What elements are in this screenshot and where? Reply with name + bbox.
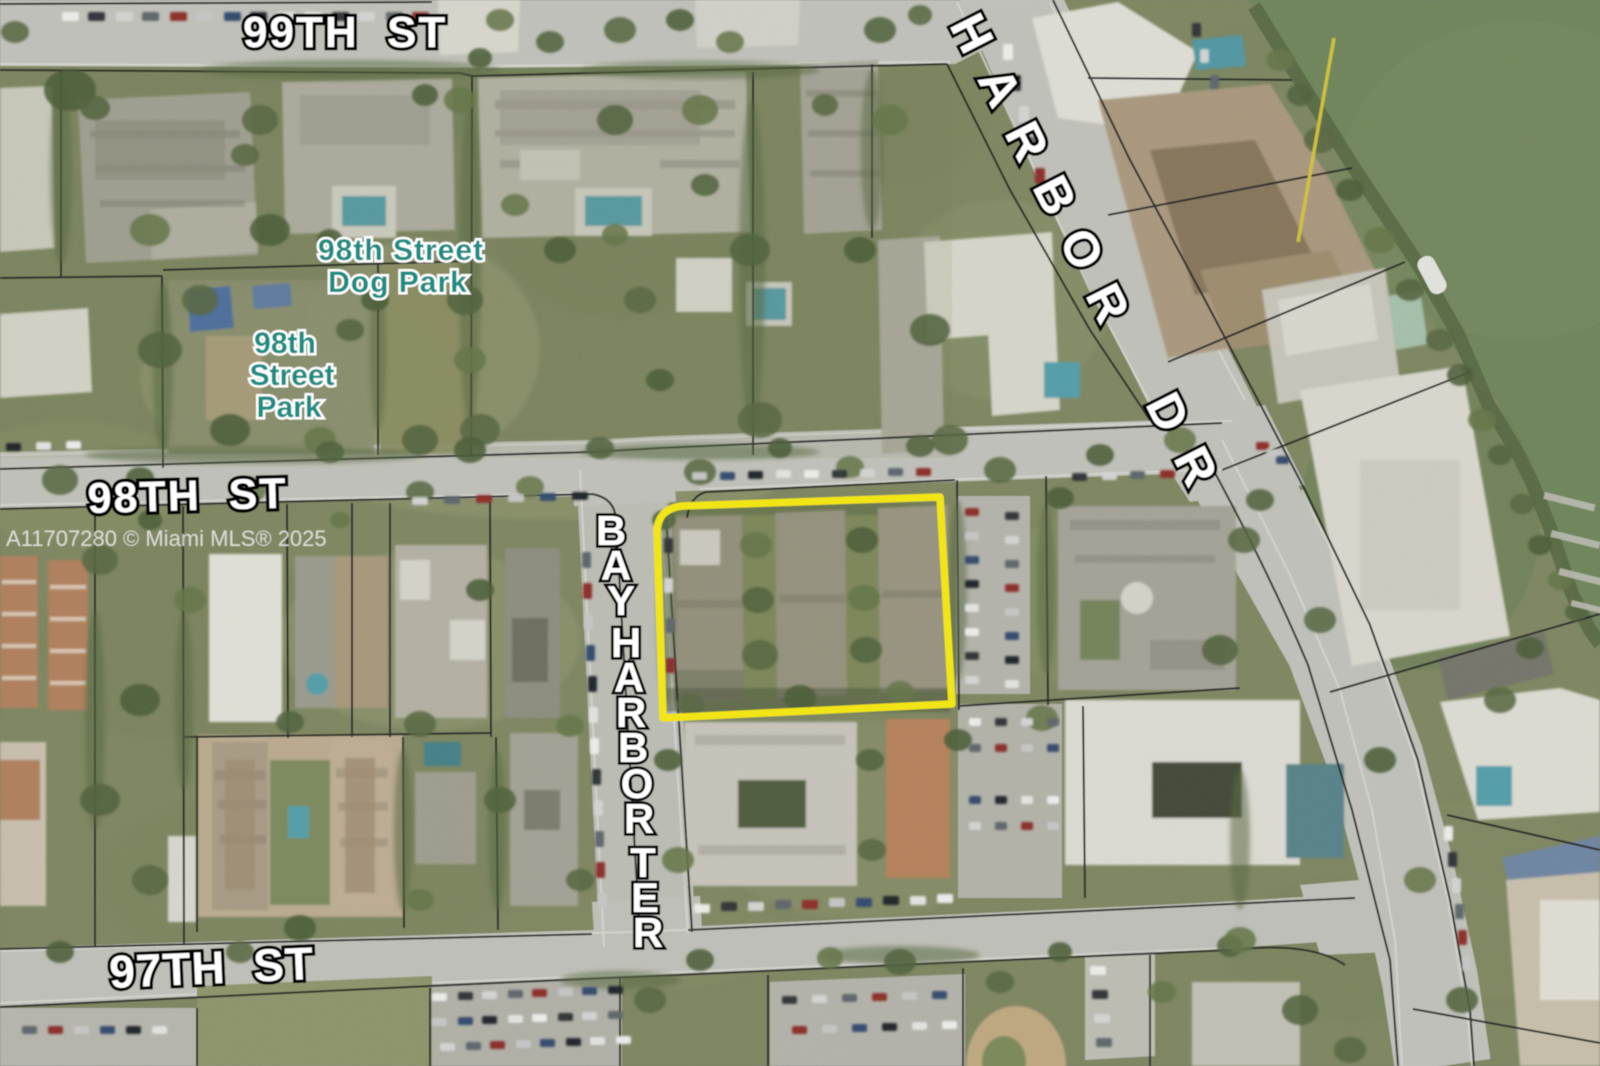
svg-text:A11707280 © Miami MLS® 2025: A11707280 © Miami MLS® 2025 <box>6 526 327 551</box>
svg-text:R: R <box>633 909 663 956</box>
svg-text:Park: Park <box>256 391 321 424</box>
svg-text:99TH ST: 99TH ST <box>243 8 447 57</box>
svg-text:98th: 98th <box>254 327 316 360</box>
svg-text:Dog Park: Dog Park <box>328 266 468 299</box>
svg-text:Y: Y <box>607 577 635 624</box>
svg-text:R: R <box>624 795 654 842</box>
svg-text:97TH ST: 97TH ST <box>108 937 315 998</box>
svg-text:98th Street: 98th Street <box>318 234 484 267</box>
svg-text:Street: Street <box>249 359 334 392</box>
svg-text:98TH ST: 98TH ST <box>87 470 288 523</box>
